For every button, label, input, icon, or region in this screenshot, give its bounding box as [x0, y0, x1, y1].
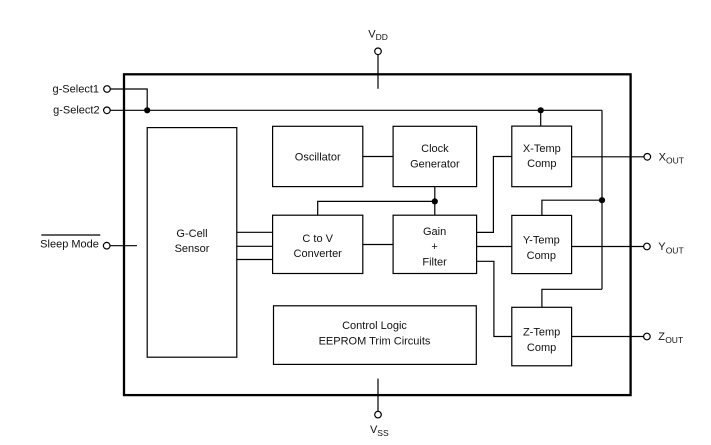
svg-text:DD: DD [376, 32, 388, 42]
svg-text:G-Cell: G-Cell [176, 228, 207, 240]
svg-text:g-Select2: g-Select2 [53, 105, 99, 117]
svg-text:OUT: OUT [665, 335, 683, 345]
svg-text:SS: SS [377, 428, 389, 438]
svg-text:Comp: Comp [527, 158, 556, 170]
svg-text:Y-Temp: Y-Temp [523, 235, 560, 247]
svg-text:g-Select1: g-Select1 [53, 84, 99, 96]
svg-text:Comp: Comp [527, 342, 556, 354]
svg-text:Oscillator: Oscillator [295, 151, 341, 163]
svg-text:Generator: Generator [410, 158, 460, 170]
svg-text:Sensor: Sensor [175, 243, 210, 255]
svg-text:OUT: OUT [666, 156, 684, 166]
svg-text:Sleep Mode: Sleep Mode [40, 239, 99, 251]
svg-text:Z-Temp: Z-Temp [523, 327, 560, 339]
svg-text:+: + [431, 241, 437, 253]
svg-text:C to V: C to V [302, 233, 333, 245]
svg-text:OUT: OUT [666, 245, 684, 255]
svg-text:Clock: Clock [421, 143, 449, 155]
svg-text:EEPROM Trim Circuits: EEPROM Trim Circuits [319, 335, 431, 347]
svg-text:Comp: Comp [527, 250, 556, 262]
svg-text:Filter: Filter [422, 256, 447, 268]
svg-text:X-Temp: X-Temp [523, 143, 561, 155]
svg-text:Converter: Converter [294, 248, 343, 260]
svg-text:Gain: Gain [423, 226, 446, 238]
svg-text:Control Logic: Control Logic [342, 320, 407, 332]
